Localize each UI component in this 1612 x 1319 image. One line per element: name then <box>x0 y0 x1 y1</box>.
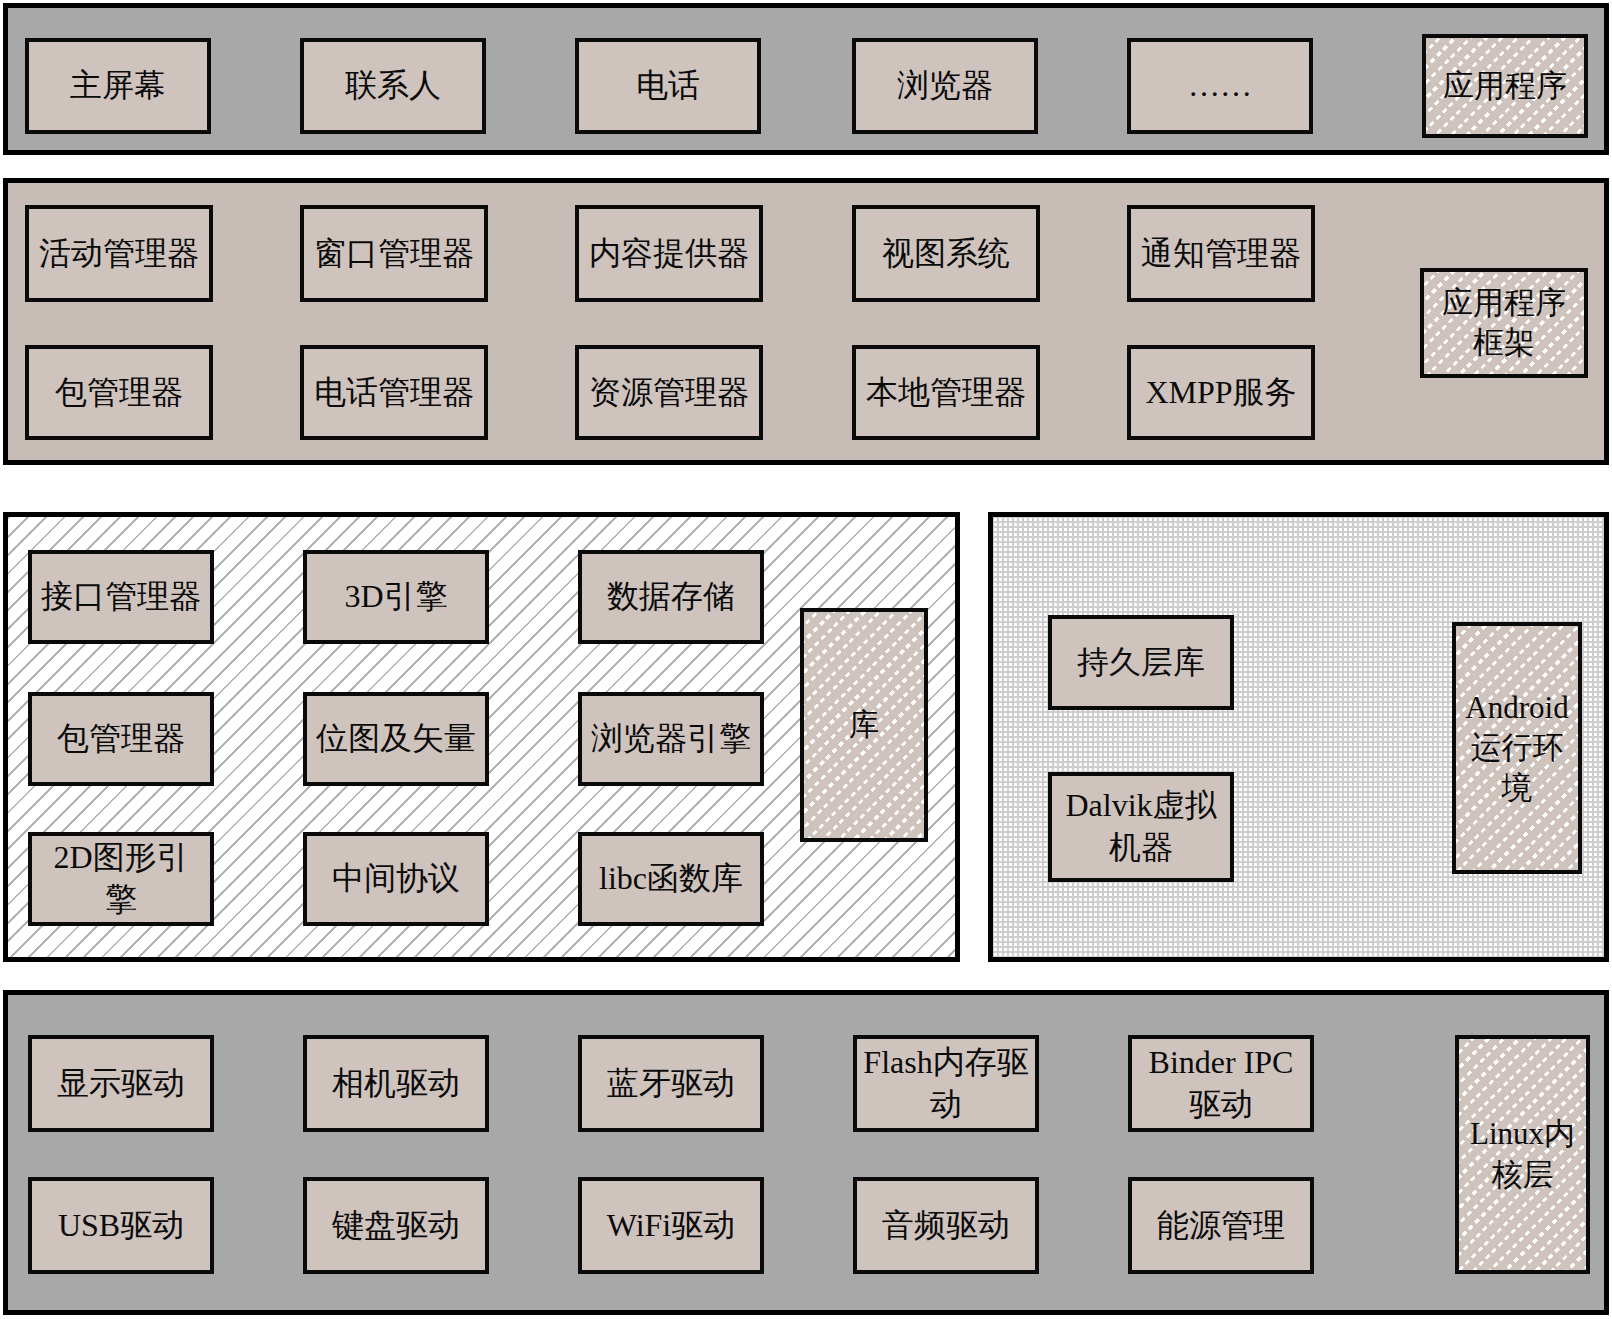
label-libraries: 库 <box>800 608 928 842</box>
box-binder-ipc-driver: Binder IPC驱动 <box>1128 1035 1314 1132</box>
box-audio-driver: 音频驱动 <box>853 1177 1039 1274</box>
box-window-manager: 窗口管理器 <box>300 205 488 302</box>
box-2d-graphics-engine: 2D图形引擎 <box>28 832 214 926</box>
box-usb-driver: USB驱动 <box>28 1177 214 1274</box>
label-applications: 应用程序 <box>1422 34 1588 138</box>
box-bitmap-vector: 位图及矢量 <box>303 692 489 786</box>
android-architecture-diagram: 主屏幕 联系人 电话 浏览器 …… 应用程序 活动管理器 窗口管理器 内容提供器… <box>0 0 1612 1319</box>
box-activity-manager: 活动管理器 <box>25 205 213 302</box>
box-display-driver: 显示驱动 <box>28 1035 214 1132</box>
label-android-runtime: Android运行环境 <box>1452 622 1582 874</box>
box-browser: 浏览器 <box>852 38 1038 134</box>
box-keyboard-driver: 键盘驱动 <box>303 1177 489 1274</box>
label-application-framework: 应用程序框架 <box>1420 268 1588 378</box>
box-camera-driver: 相机驱动 <box>303 1035 489 1132</box>
box-data-storage: 数据存储 <box>578 550 764 644</box>
box-package-manager: 包管理器 <box>25 345 213 440</box>
box-3d-engine: 3D引擎 <box>303 550 489 644</box>
box-power-management: 能源管理 <box>1128 1177 1314 1274</box>
box-notification-manager: 通知管理器 <box>1127 205 1315 302</box>
kernel-layer-band <box>3 990 1609 1315</box>
box-content-provider: 内容提供器 <box>575 205 763 302</box>
applications-layer-band <box>3 3 1609 155</box>
box-middleware-protocol: 中间协议 <box>303 832 489 926</box>
box-resource-manager: 资源管理器 <box>575 345 763 440</box>
box-wifi-driver: WiFi驱动 <box>578 1177 764 1274</box>
framework-layer-band <box>3 178 1609 465</box>
box-view-system: 视图系统 <box>852 205 1040 302</box>
box-ellipsis: …… <box>1127 38 1313 134</box>
box-phone: 电话 <box>575 38 761 134</box>
box-flash-memory-driver: Flash内存驱动 <box>853 1035 1039 1132</box>
label-linux-kernel: Linux内核层 <box>1455 1035 1590 1274</box>
box-persistence-library: 持久层库 <box>1048 615 1234 710</box>
box-telephony-manager: 电话管理器 <box>300 345 488 440</box>
box-bluetooth-driver: 蓝牙驱动 <box>578 1035 764 1132</box>
box-libc-library: libc函数库 <box>578 832 764 926</box>
box-dalvik-vm: Dalvik虚拟机器 <box>1048 772 1234 882</box>
box-xmpp-service: XMPP服务 <box>1127 345 1315 440</box>
box-home-screen: 主屏幕 <box>25 38 211 134</box>
box-location-manager: 本地管理器 <box>852 345 1040 440</box>
box-surface-manager: 接口管理器 <box>28 550 214 644</box>
box-package-manager-lib: 包管理器 <box>28 692 214 786</box>
box-browser-engine: 浏览器引擎 <box>578 692 764 786</box>
box-contacts: 联系人 <box>300 38 486 134</box>
